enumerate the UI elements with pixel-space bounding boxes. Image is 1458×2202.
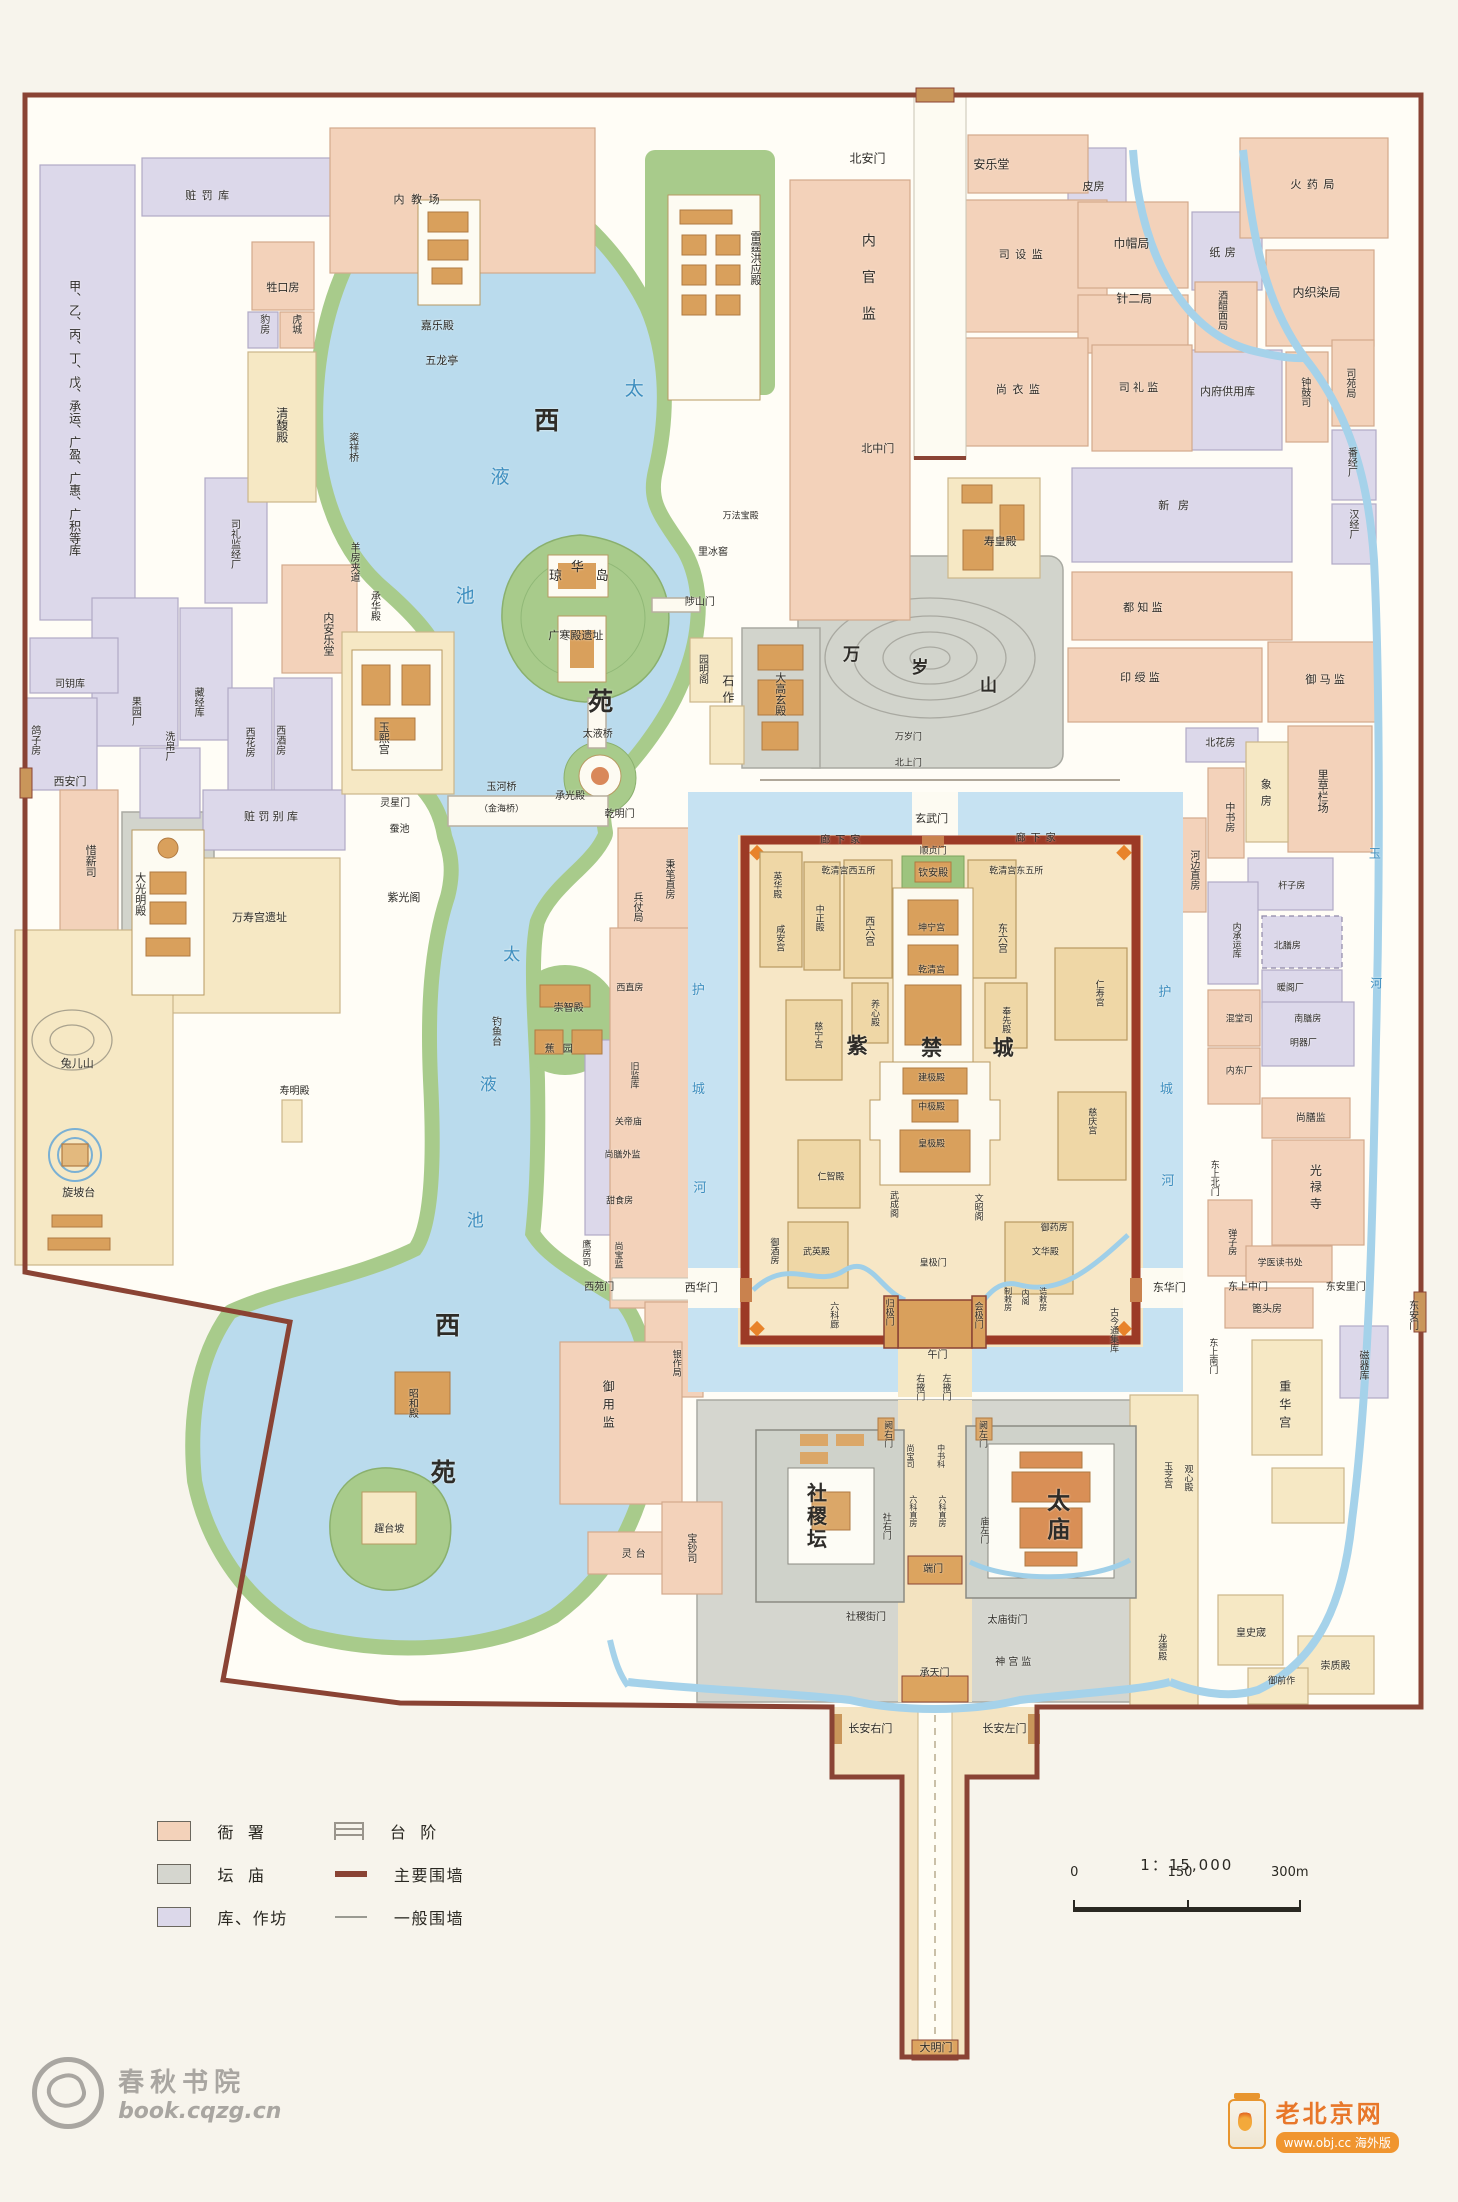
- map-legend: 衙署坛庙库、作坊 台阶主要围墙一般围墙: [157, 1819, 464, 1929]
- common-wall-line: [334, 1907, 368, 1927]
- legend-item: 衙署: [157, 1819, 287, 1843]
- main-wall-line: [334, 1864, 368, 1884]
- stairs-icon: [334, 1822, 364, 1840]
- watermark-left-url: book.cqzg.cn: [118, 2099, 281, 2124]
- office-swatch: [157, 1821, 191, 1841]
- legend-item: 一般围墙: [334, 1905, 464, 1929]
- scale-tick-start: 0: [1070, 1865, 1078, 1880]
- legend-label: 坛庙: [217, 1862, 278, 1886]
- watermark-right: 老北京网 www.obj.cc 海外版: [1228, 2094, 1399, 2153]
- scale-bar: [1073, 1907, 1300, 1912]
- xihuamen-road: [612, 1278, 690, 1300]
- legend-column-symbols: 衙署坛庙库、作坊: [157, 1819, 287, 1929]
- watermark-right-badge: www.obj.cc 海外版: [1276, 2132, 1399, 2153]
- seal-logo-icon: [32, 2057, 104, 2129]
- legend-item: 台阶: [334, 1819, 464, 1843]
- legend-label: 一般围墙: [394, 1905, 464, 1929]
- map-page: 明 皇 城 天启-崇祯年间 (1621-1644): [0, 0, 1458, 2202]
- legend-label: 库、作坊: [217, 1905, 287, 1929]
- scale-tick-mid: 150: [1168, 1865, 1193, 1880]
- legend-label: 台阶: [390, 1819, 451, 1843]
- legend-label: 衙署: [217, 1819, 278, 1843]
- legend-item: 坛庙: [157, 1862, 287, 1886]
- watermark-left-name: 春秋书院: [118, 2062, 281, 2099]
- forbidden-city: [688, 792, 1183, 1397]
- watermark-left: 春秋书院 book.cqzg.cn: [32, 2057, 281, 2129]
- lantern-logo-icon: [1228, 2099, 1266, 2149]
- temple-swatch: [157, 1864, 191, 1884]
- legend-item: 主要围墙: [334, 1862, 464, 1886]
- north-gate-street: [914, 97, 966, 459]
- legend-column-lines: 台阶主要围墙一般围墙: [334, 1819, 464, 1929]
- meridian-gate: [884, 1296, 986, 1348]
- watermark-right-name: 老北京网: [1276, 2094, 1399, 2129]
- legend-item: 库、作坊: [157, 1905, 287, 1929]
- warehouse-swatch: [157, 1907, 191, 1927]
- scale-tick-end: 300m: [1271, 1865, 1308, 1880]
- map-scale: 1：15,000 0 150 300m: [1073, 1854, 1300, 1912]
- legend-label: 主要围墙: [394, 1862, 464, 1886]
